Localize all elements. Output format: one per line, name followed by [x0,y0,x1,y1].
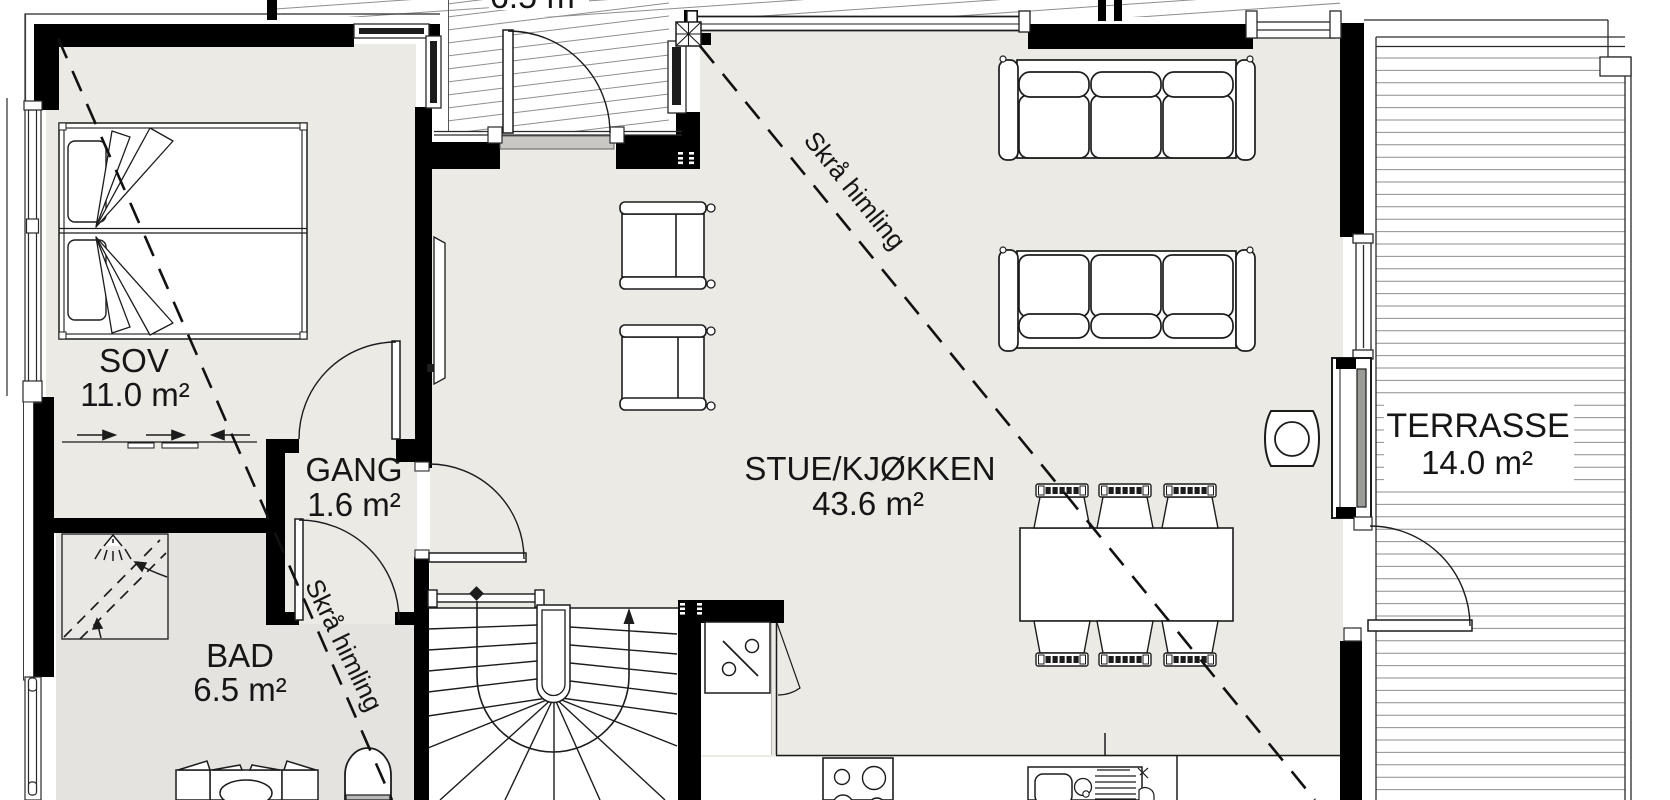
svg-text:11.0 m²: 11.0 m² [80,376,189,413]
svg-text:BAD: BAD [206,637,274,674]
svg-text:STUE/KJØKKEN: STUE/KJØKKEN [744,450,995,487]
svg-text:6.5 m²: 6.5 m² [490,0,586,16]
svg-text:SOV: SOV [99,342,169,379]
svg-text:6.5 m²: 6.5 m² [193,671,287,708]
svg-text:GANG: GANG [305,451,402,488]
svg-text:14.0 m²: 14.0 m² [1421,444,1533,481]
svg-text:43.6 m²: 43.6 m² [812,485,924,522]
svg-text:TERRASSE: TERRASSE [1386,407,1569,445]
svg-text:1.6 m²: 1.6 m² [307,486,401,523]
